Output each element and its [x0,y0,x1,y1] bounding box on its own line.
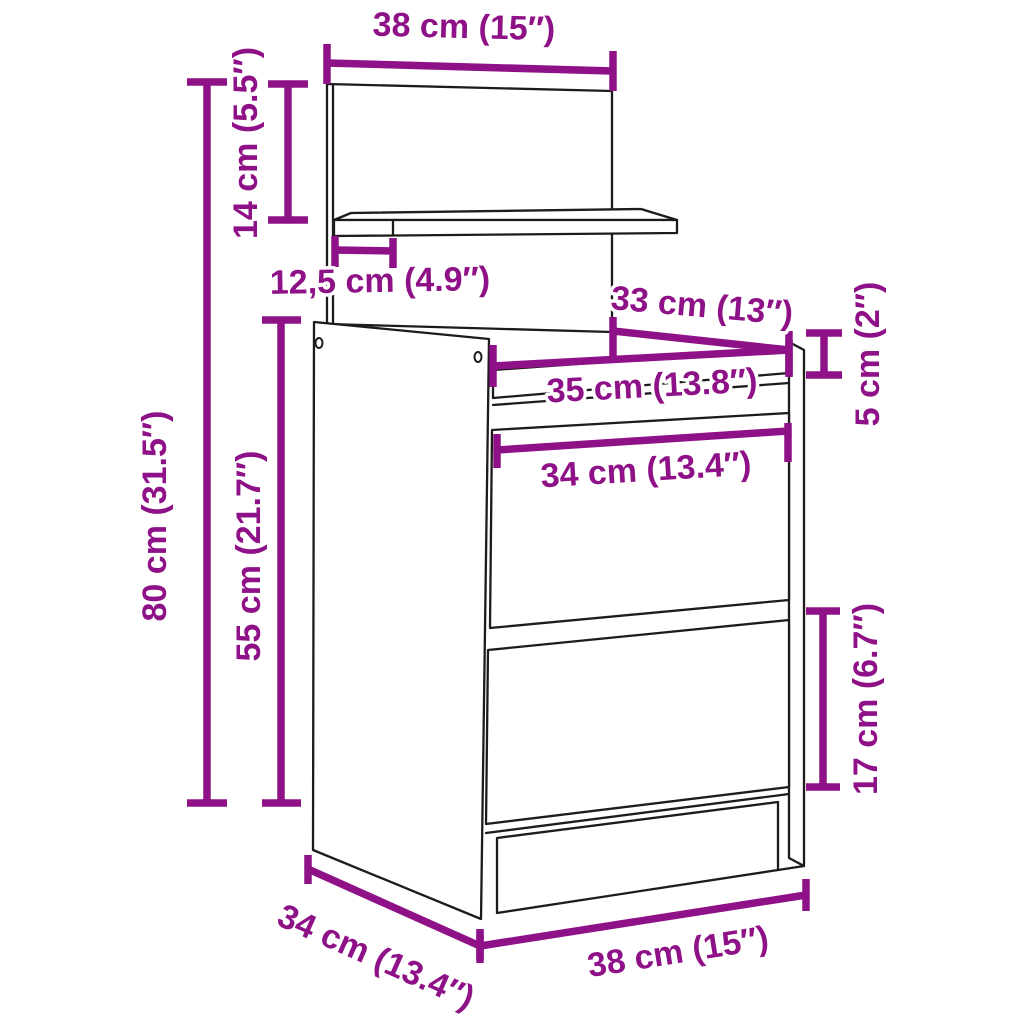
top-clear-width-label: 33 cm (13″) [609,279,794,333]
cabinet-dimension-drawing: 38 cm (15″) 14 cm (5.5″) 12,5 cm (4.9″) … [0,0,1024,1024]
right-side-edge [789,342,804,866]
dimension-cabinet-height: 55 cm (21.7″) [230,320,301,803]
side-panel [313,322,489,919]
rail-height-line [806,333,842,375]
cabinet-height-label: 55 cm (21.7″) [230,451,268,662]
rail-height-label: 5 cm (2″) [849,282,887,427]
furniture [313,84,804,919]
shelf-front-face [334,220,677,236]
overall-height-line [187,82,227,803]
dimension-overall-height: 80 cm (31.5″) [136,82,227,803]
dimension-diagram: 38 cm (15″) 14 cm (5.5″) 12,5 cm (4.9″) … [0,0,1024,1024]
back-panel-height-label: 14 cm (5.5″) [227,47,265,239]
back-panel-height-line [268,84,308,220]
depth-label: 34 cm (13.4″) [272,897,480,1018]
drawer-lower [486,620,789,824]
lower-drawer-height-label: 17 cm (6.7″) [847,603,885,795]
dimension-back-panel-width: 38 cm (15″) [327,6,613,91]
screw-hole-left [316,338,323,348]
dimension-back-panel-height: 14 cm (5.5″) [227,47,308,239]
right-leg-bottom [778,866,804,870]
screw-hole-right [475,352,482,362]
dimension-lower-drawer-height: 17 cm (6.7″) [806,603,885,795]
overall-height-label: 80 cm (31.5″) [136,411,174,622]
lower-drawer-height-line [806,611,840,787]
back-panel-width-label: 38 cm (15″) [372,6,556,49]
shelf-depth-label: 12,5 cm (4.9″) [269,260,490,302]
dimension-rail-height: 5 cm (2″) [806,282,887,427]
